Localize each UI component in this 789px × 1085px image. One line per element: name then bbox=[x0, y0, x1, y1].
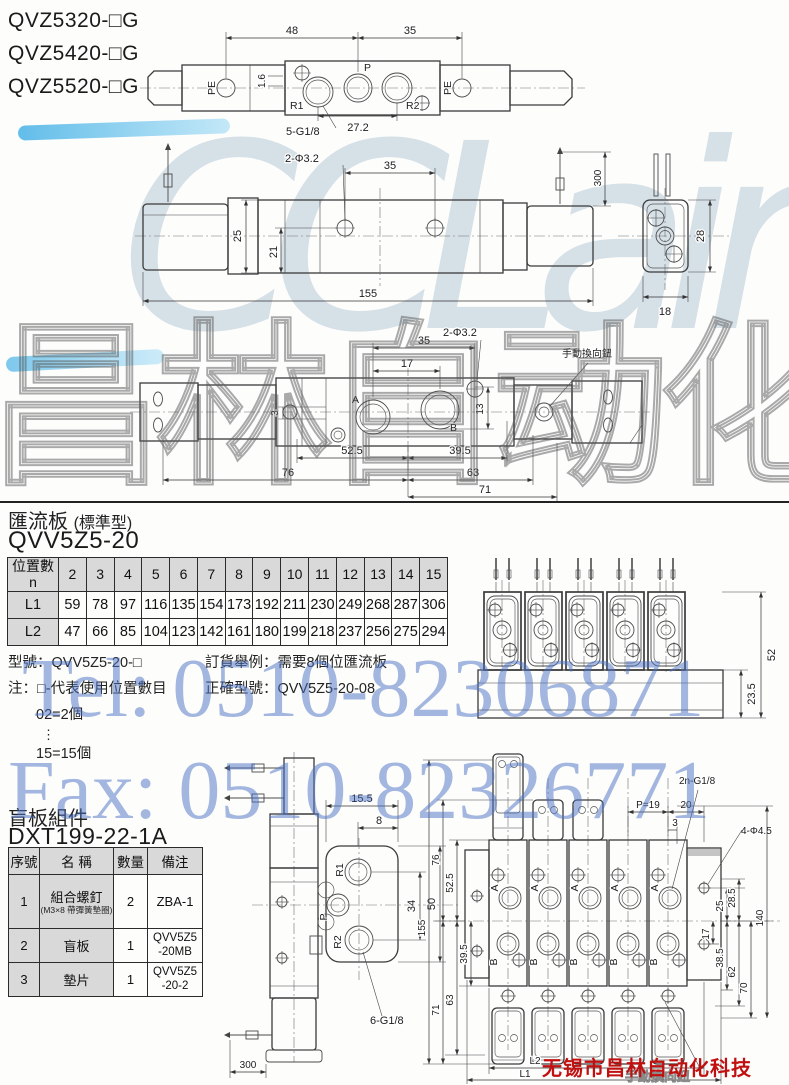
manual-override-label: 手動換向鈕 bbox=[562, 347, 612, 360]
hole-callout: 2-Φ3.2 bbox=[443, 327, 477, 339]
port-label-r2: R2 bbox=[332, 935, 344, 949]
table-header-cell: 位置數n bbox=[8, 558, 59, 592]
valve-outline bbox=[224, 752, 322, 1062]
dim-label: 28.5 bbox=[727, 888, 738, 908]
table-header-row: 序號 名 稱 數量 備注 bbox=[9, 848, 203, 875]
table-cell: 2 bbox=[9, 929, 40, 963]
thread-label: 6-G1/8 bbox=[370, 1015, 404, 1027]
dim-label: 35 bbox=[404, 25, 416, 37]
dim-label: 155 bbox=[417, 919, 428, 936]
manifold-model-number: QVV5Z5-20 bbox=[8, 527, 139, 555]
table-row-l1: L1 5978971161351541731922112302492682873… bbox=[8, 592, 448, 619]
ordering-notes-left: 型號：QVV5Z5-20-□ 注：□-代表使用位置數目 02=2個 ⋮ 15=1… bbox=[8, 650, 167, 767]
table-cell: 1 bbox=[9, 875, 40, 929]
dim-label: 300 bbox=[593, 169, 604, 186]
table-cell: 1 bbox=[114, 963, 148, 997]
dim-label: 27.2 bbox=[347, 122, 368, 134]
section-divider bbox=[0, 501, 789, 503]
dim-label: 48 bbox=[286, 25, 298, 37]
table-cell: 104 bbox=[142, 619, 170, 646]
port-label-p: P bbox=[364, 62, 371, 74]
drawing-manifold-assembly: A A A A A B B B B B P=19 20 3 2n-G1/8 bbox=[415, 748, 789, 1085]
drawing-valve-bottom-view: A B 35 17 2-Φ3.2 手動換向鈕 3 13 52.5 39.5 bbox=[130, 323, 652, 505]
blank-plate-parts-table: 序號 名 稱 數量 備注 1 組合螺釘(M3×8 帶彈簧墊圈) 2 ZBA-1 … bbox=[8, 847, 203, 997]
dimensions: 35 17 2-Φ3.2 手動換向鈕 3 13 52.5 39.5 76 bbox=[163, 327, 612, 502]
dim-label: 71 bbox=[431, 1004, 442, 1016]
table-cell: 3 bbox=[9, 963, 40, 997]
dim-label: 35 bbox=[384, 160, 396, 172]
table-cell: 盲板 bbox=[40, 929, 114, 963]
valve-stations: A A A A A B B B B B bbox=[488, 840, 687, 986]
dim-label: 13 bbox=[475, 403, 486, 415]
table-cell: 192 bbox=[253, 592, 281, 619]
port-label-a: A bbox=[609, 884, 621, 891]
end-view-outline bbox=[618, 154, 730, 290]
table-row: 1 組合螺釘(M3×8 帶彈簧墊圈) 2 ZBA-1 bbox=[9, 875, 203, 929]
model-name: QVZ5320-□G bbox=[8, 4, 139, 37]
dimensions: 48 35 1.6 27.2 5-G1/8 bbox=[226, 25, 462, 138]
catalog-page: CCLair QVZ5320-□G QVZ5420-□G QVZ5520-□G bbox=[0, 0, 789, 1085]
part-name-sub: (M3×8 帶彈簧墊圈) bbox=[40, 906, 113, 916]
dim-label: 35 bbox=[418, 335, 430, 347]
hole-callout: 4-Φ4.5 bbox=[741, 826, 772, 837]
table-cell: 2 bbox=[114, 875, 148, 929]
table-header-cell: 6 bbox=[170, 558, 198, 592]
dimensions: 2-Φ3.2 35 25 21 155 300 28 18 bbox=[143, 152, 716, 318]
dimensions: P=19 20 3 2n-G1/8 4-Φ4.5 25 28.5 17 bbox=[417, 760, 773, 1084]
dimensions: 52 23.5 bbox=[722, 592, 778, 718]
dim-label: 17 bbox=[401, 358, 413, 370]
table-cell: 116 bbox=[142, 592, 170, 619]
ordering-notes-right: 訂貨舉例：需要8個位匯流板 正確型號：QVV5Z5-20-08 bbox=[205, 650, 387, 702]
port-label-a: A bbox=[489, 884, 501, 891]
remark-line1: QVV5Z5 bbox=[148, 932, 202, 945]
table-cell: 230 bbox=[309, 592, 337, 619]
table-cell: 66 bbox=[86, 619, 114, 646]
port-label-r2: R2 bbox=[406, 100, 420, 112]
remark-line2: -20-2 bbox=[148, 980, 202, 993]
row-label: L1 bbox=[8, 592, 59, 619]
dim-label: 3 bbox=[270, 410, 281, 416]
table-header-cell: 15 bbox=[420, 558, 448, 592]
note-line: 02=2個 bbox=[36, 702, 167, 728]
thread-label: 5-G1/8 bbox=[286, 126, 320, 138]
note-ellipsis: ⋮ bbox=[42, 728, 167, 741]
port-label-b: B bbox=[450, 422, 457, 434]
model-name: QVZ5520-□G bbox=[8, 70, 139, 103]
thread-label: 2n-G1/8 bbox=[679, 776, 716, 787]
table-cell: ZBA-1 bbox=[148, 875, 203, 929]
model-list: QVZ5320-□G QVZ5420-□G QVZ5520-□G bbox=[8, 4, 139, 103]
dim-label: 17 bbox=[701, 928, 712, 940]
table-cell: 287 bbox=[392, 592, 420, 619]
manifold-dimension-table: 位置數n 23456789101112131415 L1 59789711613… bbox=[7, 557, 448, 646]
model-name: QVZ5420-□G bbox=[8, 37, 139, 70]
dim-label: 21 bbox=[268, 246, 280, 258]
table-header-cell: 14 bbox=[392, 558, 420, 592]
port-label-b: B bbox=[568, 958, 580, 965]
table-cell: 1 bbox=[114, 929, 148, 963]
drawing-valve-top-view: PE R1 P R2 PE 48 35 1.6 27.2 5-G1/8 bbox=[140, 8, 585, 140]
dim-label: 39.5 bbox=[449, 445, 470, 457]
port-labels: PE R1 P R2 PE bbox=[206, 62, 454, 112]
port-label-b: B bbox=[608, 958, 620, 965]
row-label: L2 bbox=[8, 619, 59, 646]
table-header-cell: 4 bbox=[114, 558, 142, 592]
dim-label: 76 bbox=[431, 854, 442, 866]
table-header-cell: 數量 bbox=[114, 848, 148, 875]
table-cell: 268 bbox=[364, 592, 392, 619]
table-cell: 306 bbox=[420, 592, 448, 619]
dim-label: 52.5 bbox=[341, 445, 362, 457]
dim-label: 15.5 bbox=[351, 793, 372, 805]
table-cell: 97 bbox=[114, 592, 142, 619]
table-header-cell: 12 bbox=[336, 558, 364, 592]
note-line: 型號：QVV5Z5-20-□ bbox=[8, 650, 167, 676]
table-cell: 237 bbox=[336, 619, 364, 646]
dim-label: 3 bbox=[672, 818, 678, 829]
valve-side-outline bbox=[135, 143, 605, 286]
table-cell: 256 bbox=[364, 619, 392, 646]
hole-callout: 2-Φ3.2 bbox=[285, 153, 319, 165]
dim-label: L2 bbox=[529, 1056, 541, 1067]
port-label-a: A bbox=[569, 884, 581, 891]
dim-label: 25 bbox=[232, 230, 244, 242]
dim-label: 63 bbox=[467, 467, 479, 479]
dim-label: 52 bbox=[766, 649, 778, 661]
note-line: 訂貨舉例：需要8個位匯流板 bbox=[205, 650, 387, 676]
dim-label: L1 bbox=[519, 1069, 531, 1080]
dim-label: 62 bbox=[727, 966, 738, 978]
table-header-cell: 5 bbox=[142, 558, 170, 592]
table-header-cell: 備注 bbox=[148, 848, 203, 875]
dim-label: 1.6 bbox=[257, 74, 268, 88]
table-cell: 135 bbox=[170, 592, 198, 619]
table-header-cell: 3 bbox=[86, 558, 114, 592]
dim-label: 300 bbox=[240, 1060, 257, 1071]
table-cell: 78 bbox=[86, 592, 114, 619]
table-cell: 組合螺釘(M3×8 帶彈簧墊圈) bbox=[40, 875, 114, 929]
port-label-pe: PE bbox=[442, 81, 454, 95]
port-label-b: B bbox=[528, 958, 540, 965]
dim-label: 70 bbox=[739, 982, 750, 994]
note-line: 注：□-代表使用位置數目 bbox=[8, 676, 167, 702]
table-cell: QVV5Z5-20MB bbox=[148, 929, 203, 963]
vendor-stamp: 无锡市昌林自动化科技 bbox=[542, 1052, 752, 1081]
port-label-r1: R1 bbox=[334, 863, 346, 877]
table-cell: 249 bbox=[336, 592, 364, 619]
valve-stations bbox=[484, 558, 685, 674]
table-cell: 47 bbox=[59, 619, 87, 646]
dim-label: 23.5 bbox=[746, 683, 758, 704]
drawing-manifold-front-view: 52 23.5 bbox=[468, 552, 789, 724]
table-row: 3 墊片 1 QVV5Z5-20-2 bbox=[9, 963, 203, 997]
table-header-cell: 11 bbox=[309, 558, 337, 592]
table-cell: 154 bbox=[197, 592, 225, 619]
table-header-cell: 9 bbox=[253, 558, 281, 592]
table-cell: 199 bbox=[281, 619, 309, 646]
dim-label: 18 bbox=[659, 306, 671, 318]
dim-label: 140 bbox=[755, 909, 766, 926]
dim-label: 63 bbox=[445, 994, 456, 1006]
header-line2: n bbox=[8, 575, 58, 590]
table-cell: 173 bbox=[225, 592, 253, 619]
dim-label: 28 bbox=[695, 230, 707, 242]
table-cell: 墊片 bbox=[40, 963, 114, 997]
table-cell: 142 bbox=[197, 619, 225, 646]
port-label-p: P bbox=[318, 913, 330, 920]
dim-label: 20 bbox=[680, 800, 692, 811]
table-header-cell: 8 bbox=[225, 558, 253, 592]
dim-label: 8 bbox=[376, 815, 382, 827]
remark-line2: -20MB bbox=[148, 946, 202, 959]
port-label-pe: PE bbox=[206, 81, 218, 95]
drawing-valve-side-view: 2-Φ3.2 35 25 21 155 300 28 18 bbox=[135, 140, 735, 323]
table-cell: 218 bbox=[309, 619, 337, 646]
manifold-base bbox=[478, 670, 723, 718]
remark-line1: QVV5Z5 bbox=[148, 966, 202, 979]
dim-label: 39.5 bbox=[459, 944, 470, 964]
table-cell: 211 bbox=[281, 592, 309, 619]
note-line: 15=15個 bbox=[36, 741, 167, 767]
dim-label: 52.5 bbox=[445, 873, 456, 893]
port-label-a: A bbox=[352, 394, 359, 406]
table-header-cell: 名 稱 bbox=[40, 848, 114, 875]
table-cell: 161 bbox=[225, 619, 253, 646]
part-name: 組合螺釘 bbox=[40, 887, 113, 906]
table-header-row: 位置數n 23456789101112131415 bbox=[8, 558, 448, 592]
table-row: 2 盲板 1 QVV5Z5-20MB bbox=[9, 929, 203, 963]
table-cell: 59 bbox=[59, 592, 87, 619]
table-row-l2: L2 4766851041231421611801992182372562752… bbox=[8, 619, 448, 646]
table-header-cell: 10 bbox=[281, 558, 309, 592]
port-label-r1: R1 bbox=[290, 100, 304, 112]
dim-label: 155 bbox=[359, 288, 377, 300]
table-header-cell: 13 bbox=[364, 558, 392, 592]
dim-label: P=19 bbox=[636, 800, 660, 811]
blank-plate-model-number: DXT199-22-1A bbox=[8, 823, 167, 850]
port-label-b: B bbox=[648, 958, 660, 965]
table-header-cell: 序號 bbox=[9, 848, 40, 875]
dim-label: 38.5 bbox=[715, 948, 726, 968]
dim-label: 76 bbox=[282, 467, 294, 479]
dim-label: 25 bbox=[715, 900, 726, 912]
header-line1: 位置數 bbox=[8, 559, 58, 574]
table-cell: QVV5Z5-20-2 bbox=[148, 963, 203, 997]
dim-label: 71 bbox=[479, 484, 491, 496]
port-label-b: B bbox=[488, 958, 500, 965]
table-cell: 294 bbox=[420, 619, 448, 646]
table-cell: 123 bbox=[170, 619, 198, 646]
port-label-a: A bbox=[649, 884, 661, 891]
port-label-a: A bbox=[529, 884, 541, 891]
table-header-cell: 7 bbox=[197, 558, 225, 592]
table-cell: 275 bbox=[392, 619, 420, 646]
table-cell: 180 bbox=[253, 619, 281, 646]
note-line: 正確型號：QVV5Z5-20-08 bbox=[205, 676, 387, 702]
table-cell: 85 bbox=[114, 619, 142, 646]
table-header-cell: 2 bbox=[59, 558, 87, 592]
